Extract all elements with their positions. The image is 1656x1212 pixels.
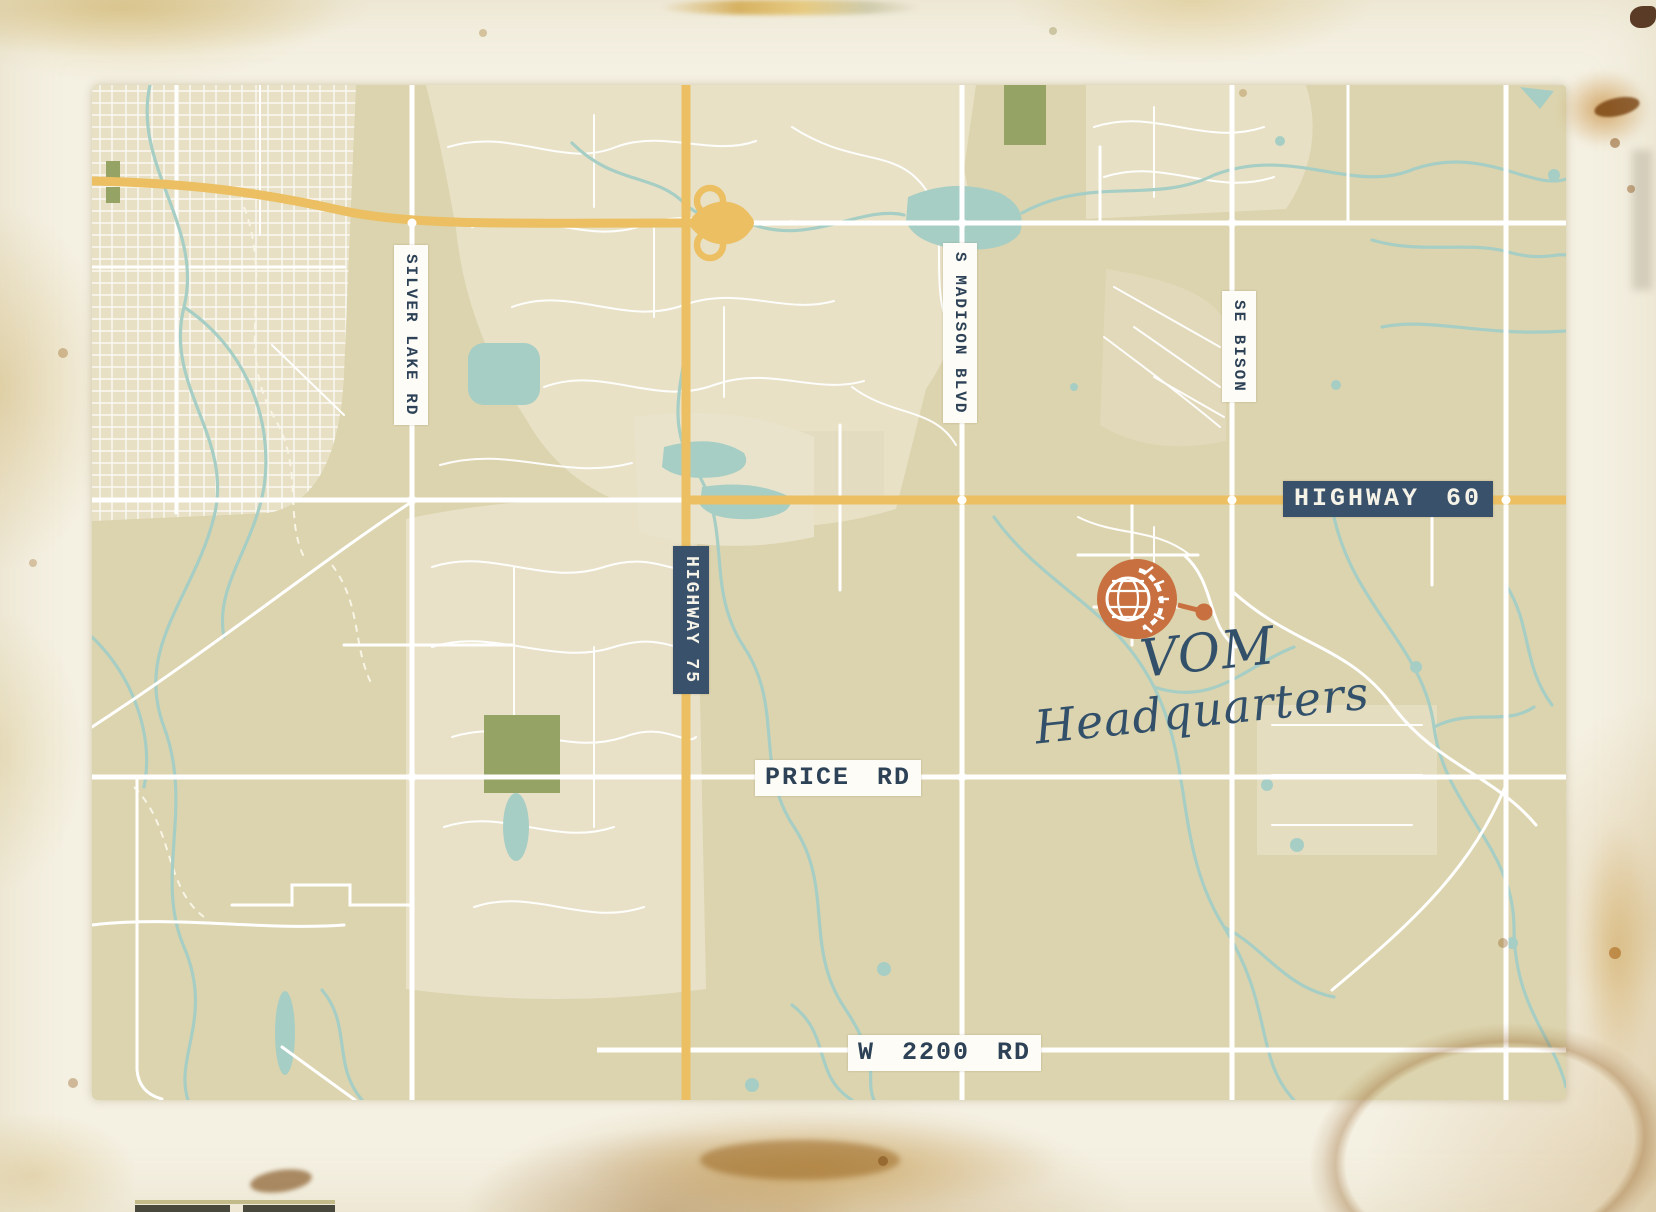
- road-label-w-2200-rd: W 2200 RD: [848, 1035, 1041, 1071]
- stain-bottom-center: [580, 1118, 1060, 1212]
- stain-right-edge-streak: [1632, 150, 1652, 290]
- highway-label-75: HIGHWAY 75: [673, 546, 709, 694]
- stain-top-right-core: [1593, 93, 1642, 120]
- stain-speckles: [0, 0, 6, 6]
- stain-right-lower: [1578, 820, 1656, 1080]
- stain-bottom-left-blob: [249, 1166, 313, 1196]
- road-label-silver-lake-rd: SILVER LAKE RD: [394, 245, 428, 425]
- map-artwork: [92, 85, 1566, 1100]
- stain-corner-blob: [1630, 6, 1656, 28]
- film-strip-mark-right: [243, 1205, 335, 1212]
- film-strip-mark-left: [135, 1205, 230, 1212]
- film-strip-tint: [135, 1200, 335, 1204]
- stain-bottom-center-dark: [700, 1140, 900, 1180]
- marker-location-dot: [1196, 604, 1213, 621]
- highway-label-60: HIGHWAY 60: [1283, 481, 1493, 517]
- stain-top-center-streak: [660, 0, 920, 15]
- road-label-se-bison: SE BISON: [1222, 291, 1256, 402]
- road-label-price-rd: PRICE RD: [755, 760, 921, 796]
- road-label-s-madison-blvd: S MADISON BLVD: [943, 243, 977, 423]
- vintage-map-photo: SILVER LAKE RD S MADISON BLVD SE BISON H…: [0, 0, 1656, 1212]
- stain-top-right-blotch: [1558, 70, 1650, 148]
- street-map: SILVER LAKE RD S MADISON BLVD SE BISON H…: [92, 85, 1566, 1100]
